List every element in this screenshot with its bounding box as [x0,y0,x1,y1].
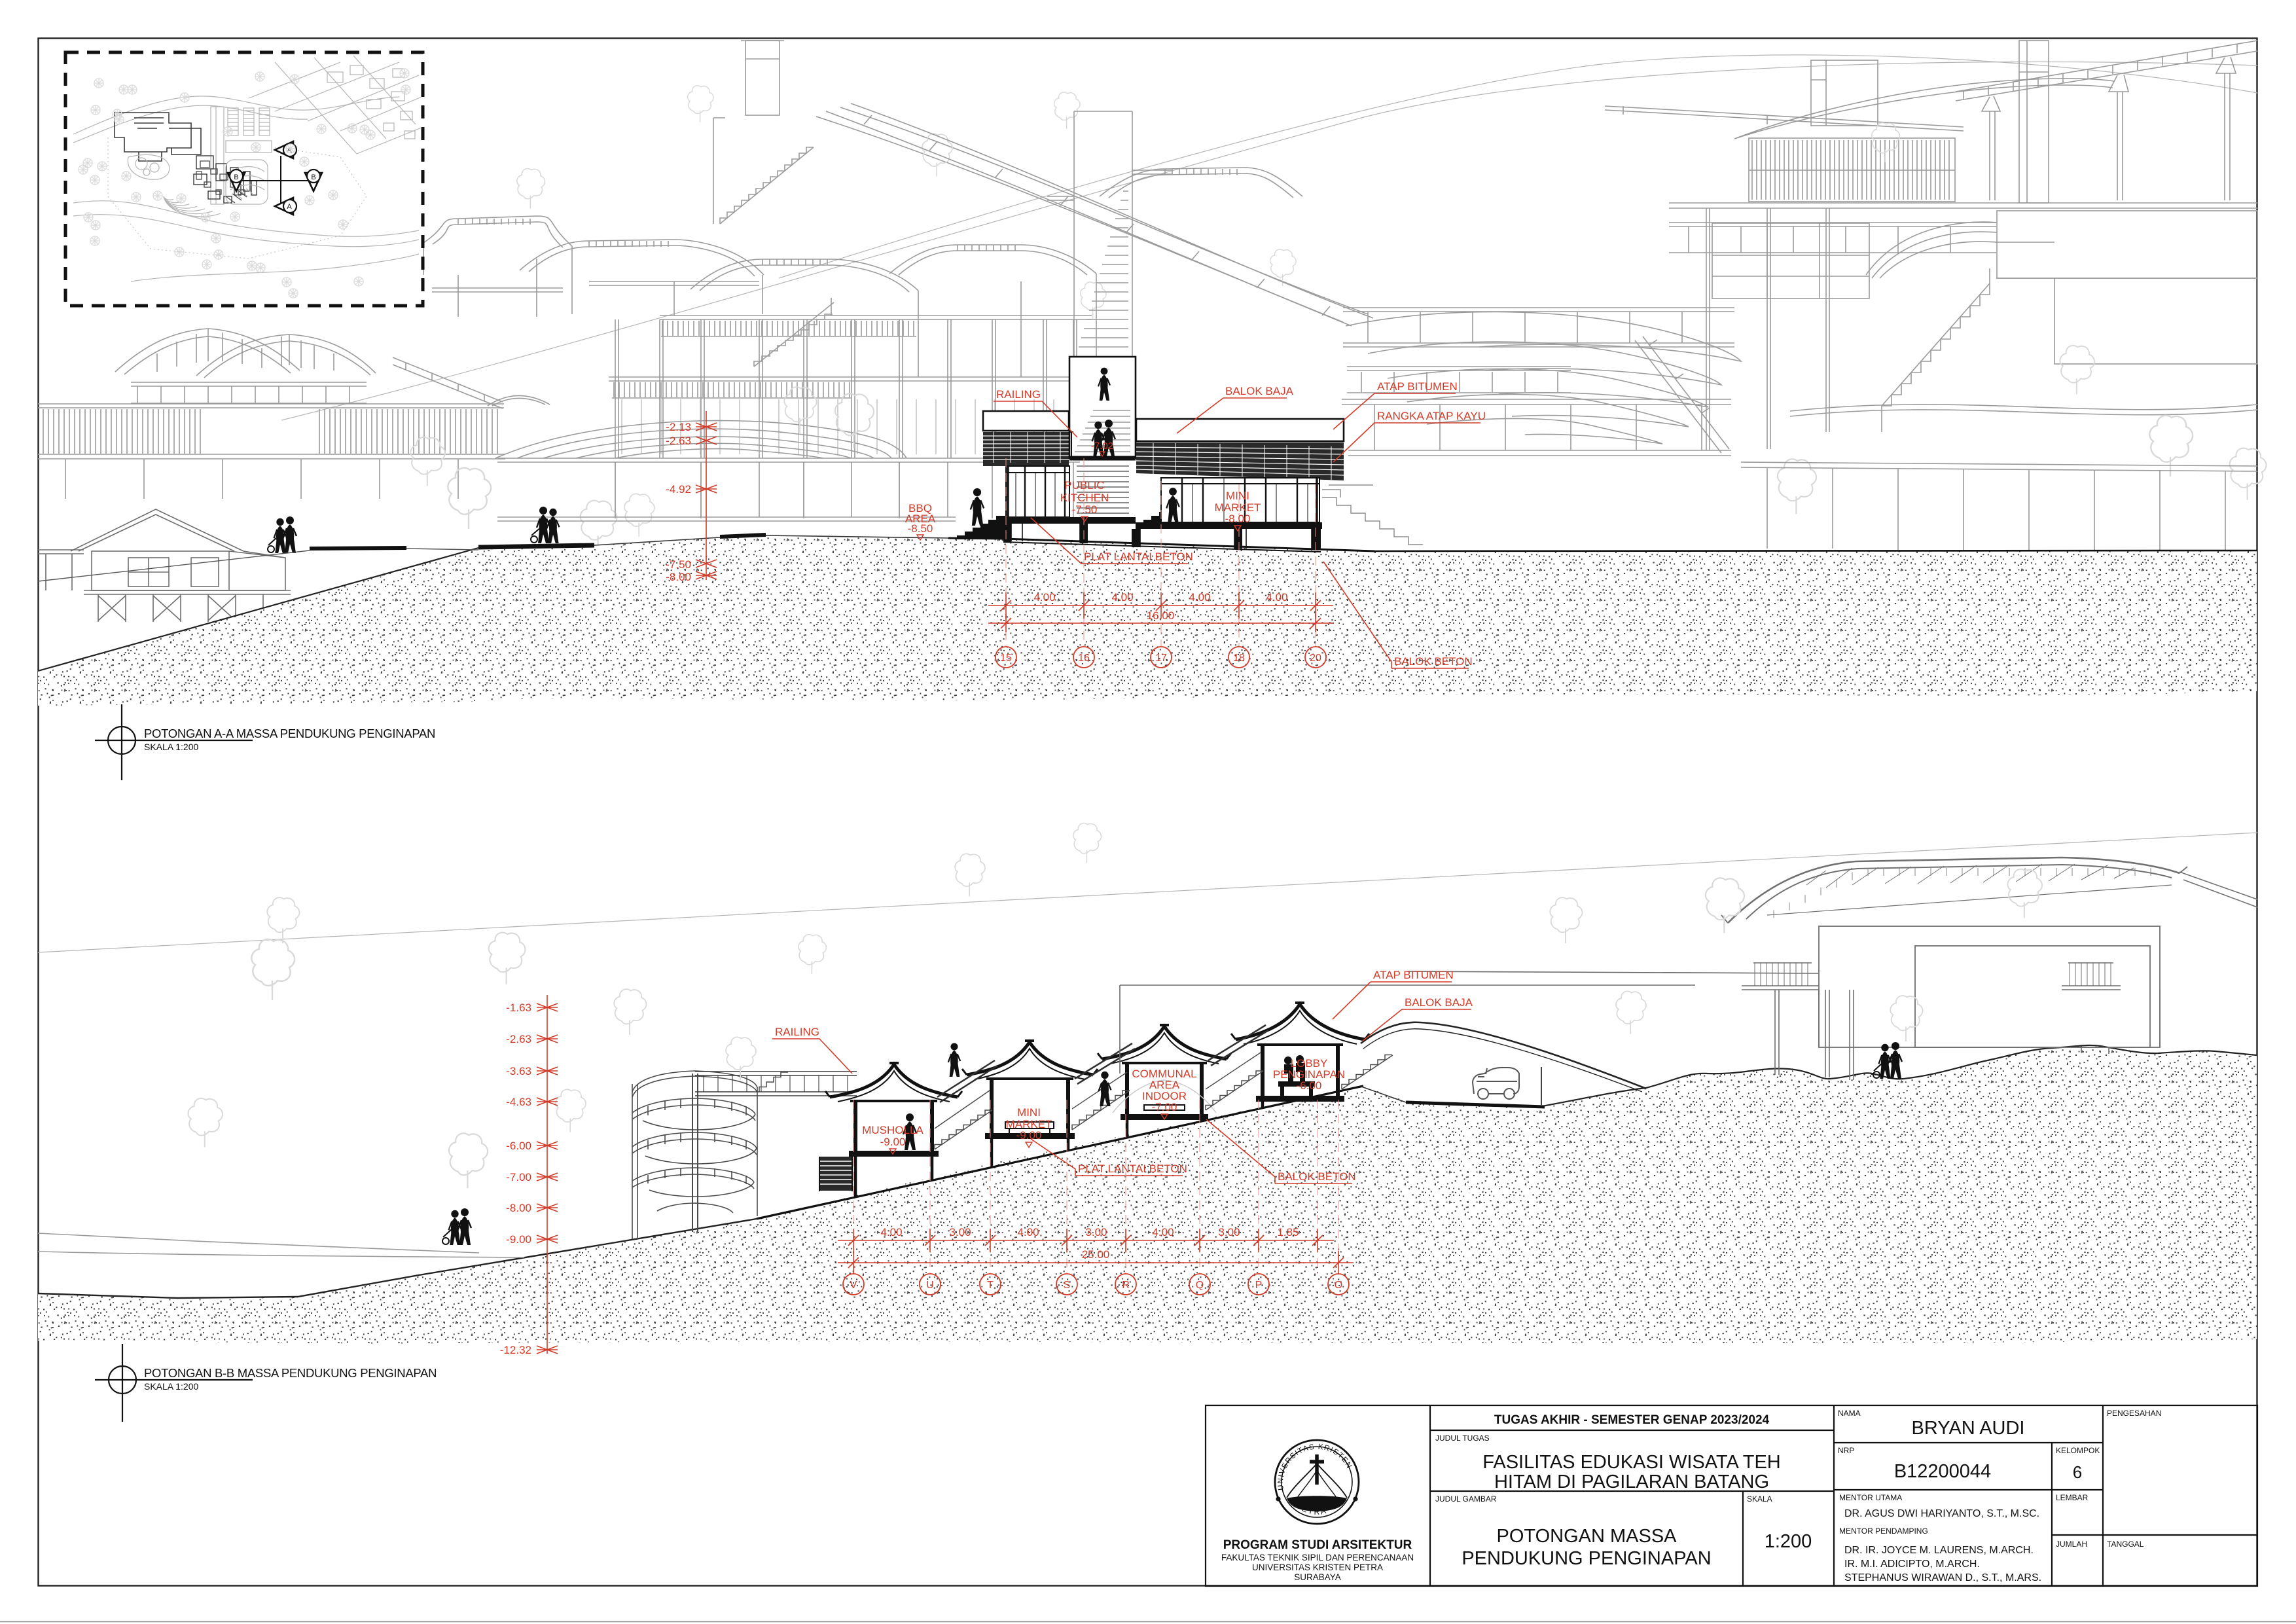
svg-text:FASILITAS EDUKASI WISATA TEH: FASILITAS EDUKASI WISATA TEH [1482,1452,1781,1473]
svg-text:PLAT LANTAI BETON: PLAT LANTAI BETON [1084,550,1193,563]
svg-text:T: T [987,1280,994,1291]
svg-text:ATAP BITUMEN: ATAP BITUMEN [1373,969,1454,981]
svg-text:NAMA: NAMA [1838,1409,1861,1418]
svg-text:-1.63: -1.63 [506,1001,531,1014]
svg-text:NRP: NRP [1838,1446,1854,1455]
svg-text:-4.92: -4.92 [666,483,691,496]
svg-text:16.00: 16.00 [1147,609,1175,622]
svg-text:MINI: MINI [1226,490,1249,502]
svg-text:-6.00: -6.00 [506,1140,531,1152]
svg-text:-12.32: -12.32 [500,1344,531,1356]
svg-text:ATAP BITUMEN: ATAP BITUMEN [1377,380,1458,393]
svg-text:B12200044: B12200044 [1894,1461,1991,1482]
svg-text:-8.50: -8.50 [908,522,933,535]
svg-text:O: O [1335,1280,1342,1291]
svg-text:-6.00: -6.00 [1297,1079,1322,1092]
svg-text:DR. AGUS DWI HARIYANTO, S.T.,: DR. AGUS DWI HARIYANTO, S.T., M.SC. [1844,1508,2039,1519]
svg-text:JUDUL TUGAS: JUDUL TUGAS [1435,1434,1490,1443]
svg-text:U: U [926,1280,934,1291]
svg-text:4.00: 4.00 [1189,591,1210,604]
svg-text:4.00: 4.00 [1111,591,1133,604]
svg-text:SKALA 1:200: SKALA 1:200 [144,1381,199,1392]
svg-text:BRYAN AUDI: BRYAN AUDI [1912,1418,2025,1439]
svg-text:SKALA 1:200: SKALA 1:200 [144,742,199,752]
svg-text:-8.00: -8.00 [506,1202,531,1214]
svg-text:16: 16 [1078,653,1090,664]
svg-text:4.00: 4.00 [1033,591,1055,604]
svg-text:TUGAS AKHIR - SEMESTER GENAP 2: TUGAS AKHIR - SEMESTER GENAP 2023/2024 [1494,1413,1770,1427]
svg-text:17: 17 [1155,653,1167,664]
svg-text:POTONGAN A-A MASSA PENDUKUNG P: POTONGAN A-A MASSA PENDUKUNG PENGINAPAN [144,727,435,740]
svg-text:MINI: MINI [1017,1106,1041,1119]
svg-text:LEMBAR: LEMBAR [2056,1493,2089,1502]
svg-text:-9.00: -9.00 [880,1136,906,1148]
svg-text:DR. IR. JOYCE M. LAURENS, M.AR: DR. IR. JOYCE M. LAURENS, M.ARCH. [1844,1545,2034,1556]
svg-text:1:200: 1:200 [1765,1531,1812,1552]
svg-text:PLAT LANTAI BETON: PLAT LANTAI BETON [1078,1163,1187,1175]
svg-text:-9.00: -9.00 [506,1233,531,1246]
svg-text:BALOK BETON: BALOK BETON [1394,655,1473,668]
svg-text:BALOK BETON: BALOK BETON [1278,1170,1356,1183]
svg-text:R: R [1122,1280,1130,1291]
svg-text:-7.02: -7.02 [1091,441,1113,452]
svg-text:FAKULTAS TEKNIK SIPIL DAN PERE: FAKULTAS TEKNIK SIPIL DAN PERENCANAAN [1221,1553,1414,1562]
svg-text:-3.63: -3.63 [506,1065,531,1077]
svg-text:A: A [287,203,292,211]
svg-text:RAILING: RAILING [775,1026,819,1038]
svg-text:UNIVERSITAS KRISTEN PETRA: UNIVERSITAS KRISTEN PETRA [1252,1562,1383,1572]
svg-text:IR. M.I. ADICIPTO, M.ARCH.: IR. M.I. ADICIPTO, M.ARCH. [1844,1559,1980,1570]
svg-text:KITCHEN: KITCHEN [1060,492,1109,504]
svg-text:MUSHOLLA: MUSHOLLA [862,1124,924,1136]
svg-text:B: B [311,173,315,181]
svg-text:RANGKA ATAP KAYU: RANGKA ATAP KAYU [1377,410,1486,422]
svg-text:V: V [850,1280,857,1291]
svg-text:3.00: 3.00 [1218,1226,1240,1238]
svg-text:-7.00: -7.00 [1152,1101,1177,1113]
svg-text:PENDUKUNG PENGINAPAN: PENDUKUNG PENGINAPAN [1462,1548,1711,1569]
svg-text:-8.00: -8.00 [1225,513,1251,525]
svg-text:RAILING: RAILING [996,388,1041,401]
svg-text:4.00: 4.00 [1017,1226,1039,1238]
svg-text:PROGRAM STUDI ARSITEKTUR: PROGRAM STUDI ARSITEKTUR [1223,1538,1412,1552]
svg-text:SURABAYA: SURABAYA [1294,1572,1341,1582]
svg-text:POTONGAN B-B MASSA PENDUKUNG P: POTONGAN B-B MASSA PENDUKUNG PENGINAPAN [144,1366,437,1380]
svg-text:25.00: 25.00 [1082,1248,1110,1261]
svg-text:Q: Q [1196,1280,1204,1291]
svg-text:STEPHANUS WIRAWAN D., S.T., M.: STEPHANUS WIRAWAN D., S.T., M.ARS. [1844,1572,2041,1583]
svg-text:BALOK BAJA: BALOK BAJA [1225,385,1294,397]
svg-text:20: 20 [1310,653,1321,664]
svg-text:3.00: 3.00 [1085,1226,1107,1238]
svg-text:S: S [1064,1280,1071,1291]
svg-text:-8.00: -8.00 [666,571,691,583]
svg-text:PUBLIC: PUBLIC [1064,479,1104,492]
svg-text:1.85: 1.85 [1277,1226,1299,1238]
svg-text:4.00: 4.00 [1152,1226,1174,1238]
svg-text:-2.63: -2.63 [666,435,691,447]
svg-text:JUDUL GAMBAR: JUDUL GAMBAR [1435,1494,1497,1504]
svg-text:KELOMPOK: KELOMPOK [2056,1446,2100,1455]
svg-text:B: B [234,173,238,181]
svg-text:-7.50: -7.50 [666,558,691,571]
svg-text:-4.63: -4.63 [506,1096,531,1108]
svg-text:-2.63: -2.63 [506,1033,531,1045]
svg-text:PENGESAHAN: PENGESAHAN [2107,1409,2161,1418]
svg-text:-7.00: -7.00 [506,1171,531,1183]
svg-text:3.00: 3.00 [949,1226,971,1238]
svg-text:POTONGAN MASSA: POTONGAN MASSA [1496,1526,1677,1547]
svg-text:BALOK BAJA: BALOK BAJA [1405,996,1473,1009]
svg-text:JUMLAH: JUMLAH [2056,1540,2087,1549]
svg-text:HITAM DI PAGILARAN BATANG: HITAM DI PAGILARAN BATANG [1494,1471,1769,1492]
svg-text:TANGGAL: TANGGAL [2107,1540,2144,1549]
svg-text:-2.13: -2.13 [666,421,691,433]
svg-text:4.00: 4.00 [880,1226,902,1238]
svg-text:MENTOR PENDAMPING: MENTOR PENDAMPING [1839,1526,1928,1536]
svg-text:-7.50: -7.50 [1072,503,1098,516]
svg-text:SKALA: SKALA [1747,1494,1772,1504]
svg-text:4.00: 4.00 [1266,591,1287,604]
svg-text:P: P [1255,1280,1263,1291]
svg-text:MENTOR UTAMA: MENTOR UTAMA [1839,1493,1902,1502]
svg-text:15: 15 [1000,653,1012,664]
svg-text:18: 18 [1233,653,1245,664]
svg-text:-9.00: -9.00 [1016,1129,1042,1142]
svg-text:6: 6 [2073,1462,2082,1482]
